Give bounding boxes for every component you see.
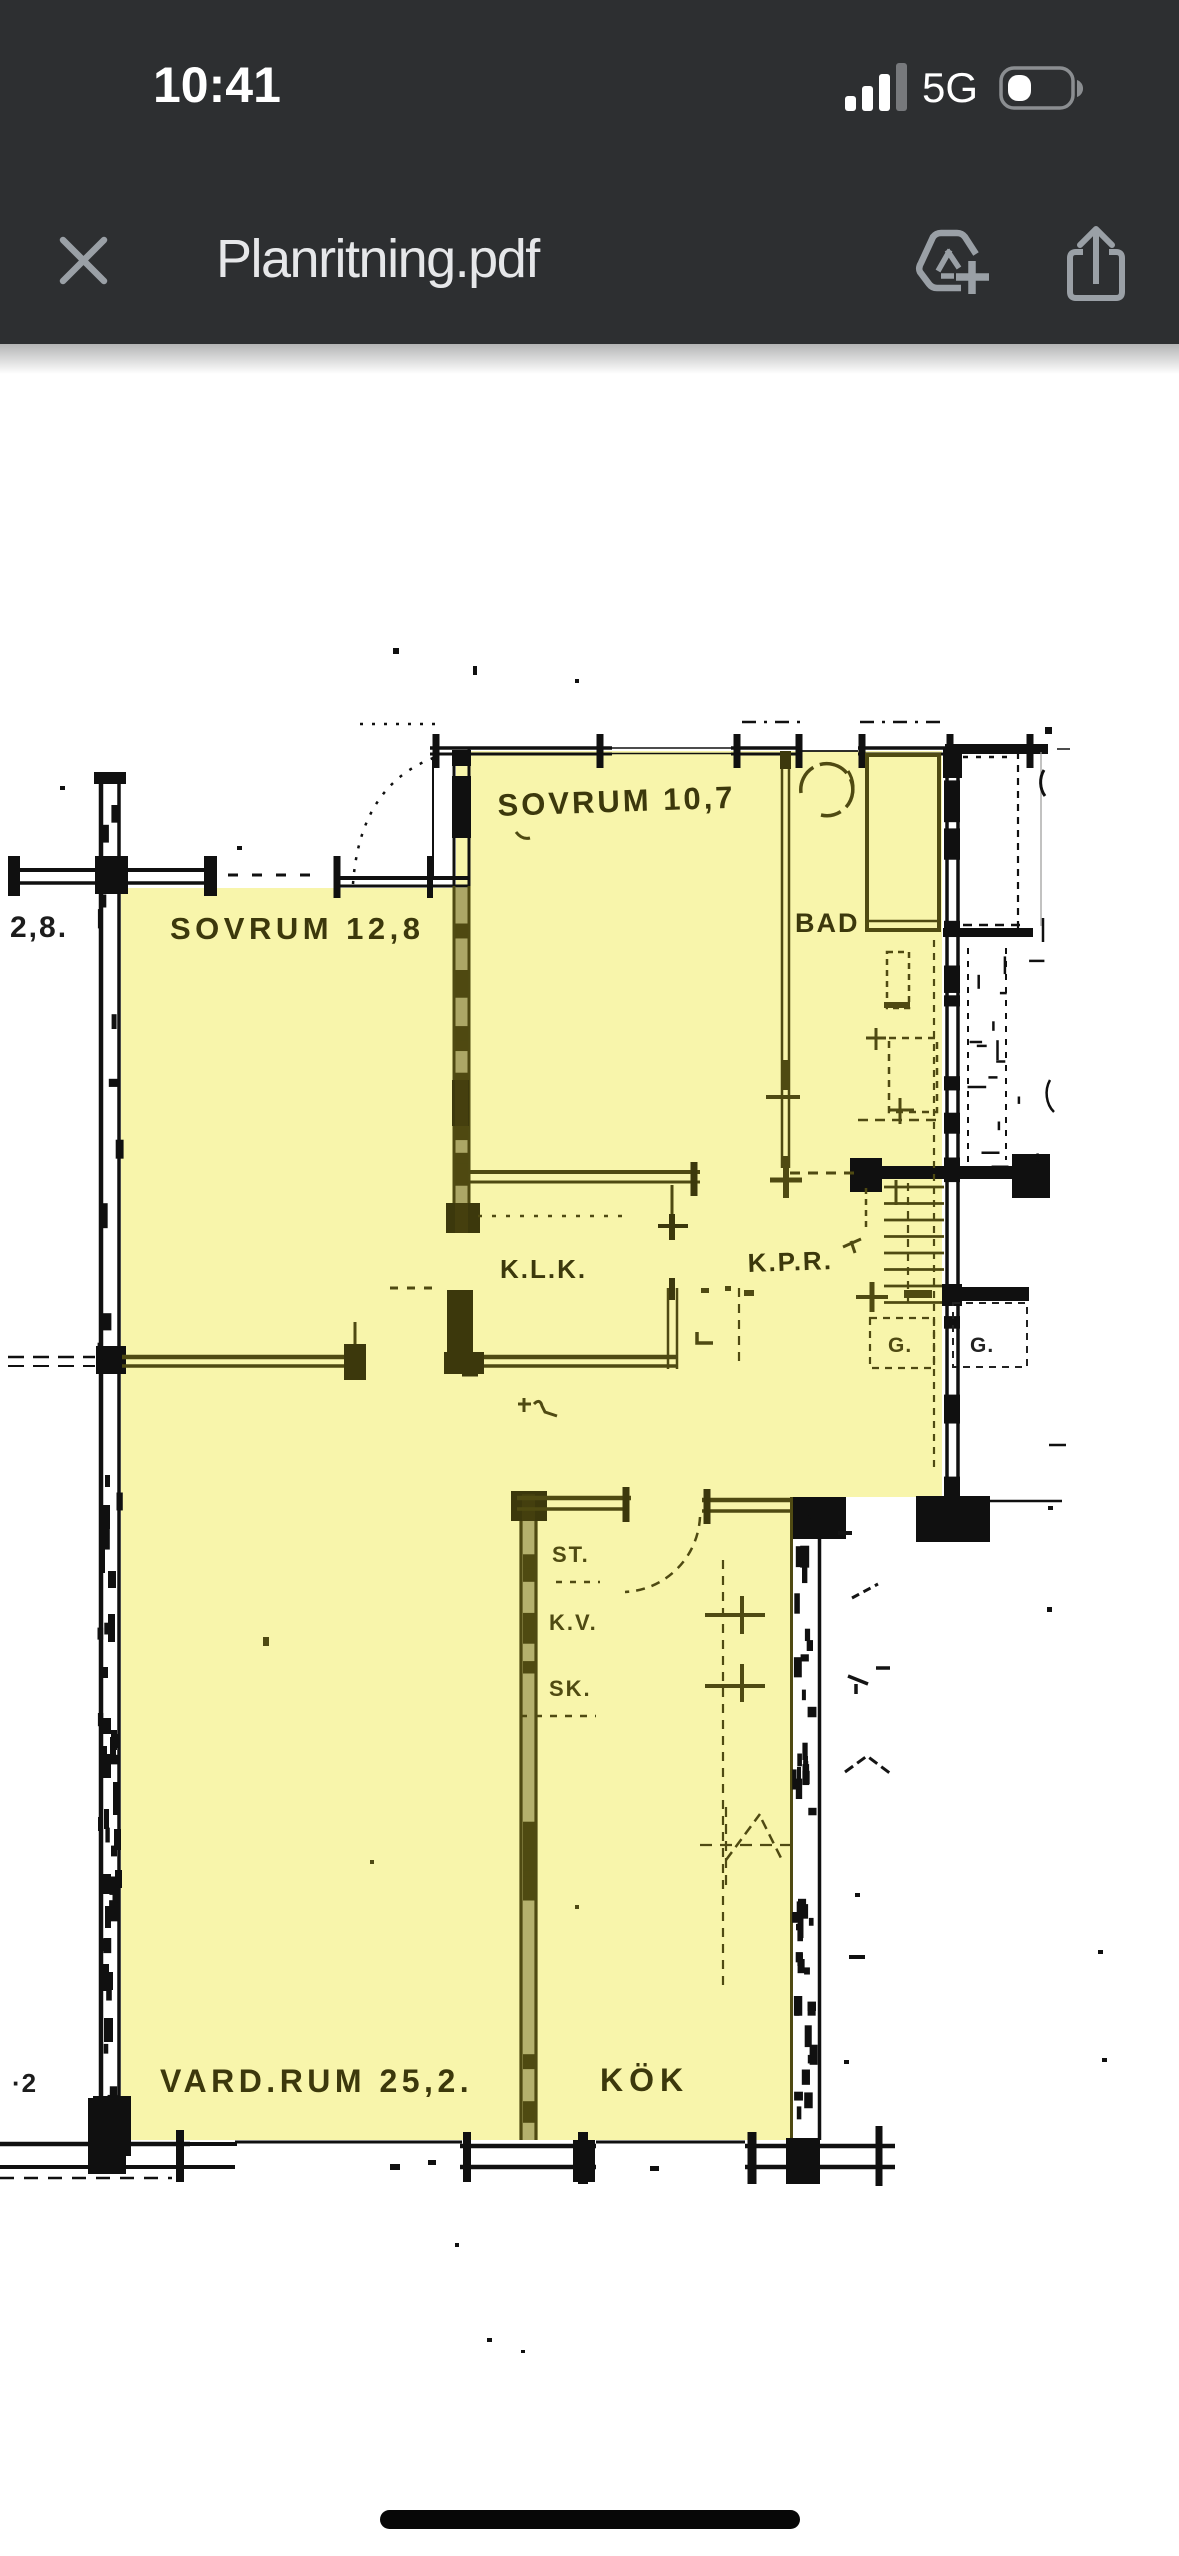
- svg-text:ST.: ST.: [552, 1542, 590, 1567]
- svg-text:·2: ·2: [12, 2068, 37, 2098]
- svg-text:KÖK: KÖK: [600, 2062, 689, 2098]
- svg-text:G.: G.: [970, 1334, 994, 1357]
- svg-text:K.V.: K.V.: [549, 1610, 598, 1635]
- svg-text:2,8.: 2,8.: [10, 911, 68, 944]
- svg-text:K.P.R.: K.P.R.: [747, 1245, 833, 1278]
- svg-text:SOVRUM 12,8: SOVRUM 12,8: [170, 911, 425, 946]
- svg-text:G.: G.: [888, 1334, 912, 1357]
- svg-text:K.L.K.: K.L.K.: [500, 1254, 587, 1284]
- svg-text:VARD.RUM 25,2.: VARD.RUM 25,2.: [160, 2063, 473, 2099]
- svg-text:SK.: SK.: [549, 1676, 592, 1701]
- svg-text:BAD: BAD: [795, 908, 860, 938]
